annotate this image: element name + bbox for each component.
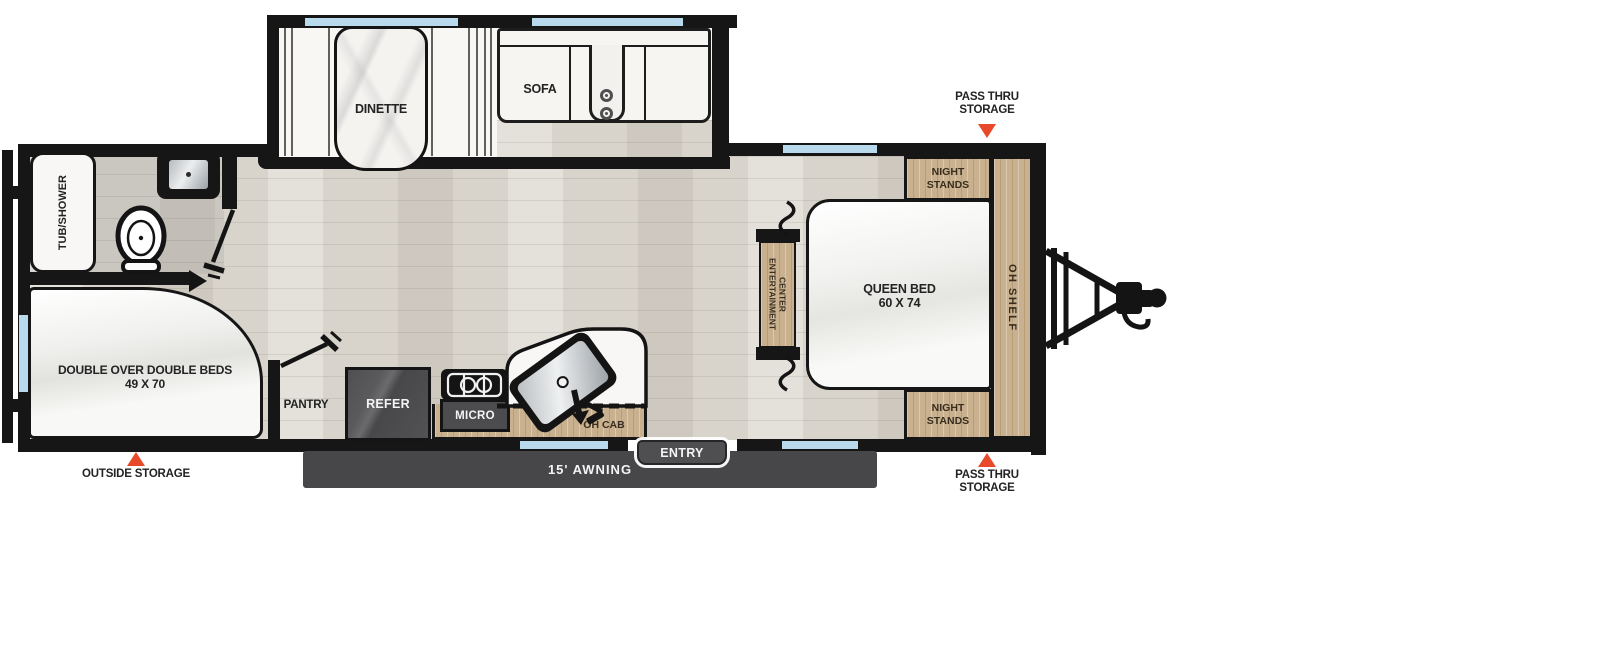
pass-thru-storage-label-top: PASS THRU STORAGE bbox=[925, 91, 1049, 117]
bumper-bracket bbox=[13, 399, 19, 412]
night-stand-top: NIGHT STANDS bbox=[904, 156, 992, 201]
pass-thru-top-line2: STORAGE bbox=[925, 104, 1049, 117]
oh-shelf: OH SHELF bbox=[991, 156, 1033, 439]
bathroom-wall-stub bbox=[222, 148, 237, 209]
dinette-label: DINETTE bbox=[336, 102, 426, 116]
dinette-table bbox=[334, 26, 428, 171]
slideout-divider-line bbox=[484, 28, 486, 156]
bench-panel-line bbox=[328, 28, 330, 156]
tub-shower-label: TUB/SHOWER bbox=[57, 175, 69, 250]
pantry-label: PANTRY bbox=[270, 399, 342, 412]
window bbox=[783, 145, 877, 153]
bench-panel-line bbox=[291, 28, 293, 156]
sofa-seat-divider bbox=[644, 45, 646, 120]
sofa-label: SOFA bbox=[508, 82, 572, 96]
pass-thru-bottom-line2: STORAGE bbox=[925, 482, 1049, 495]
awning-bar: 15' AWNING bbox=[303, 451, 877, 488]
queen-bed-label-line2: 60 X 74 bbox=[812, 296, 987, 310]
pass-thru-storage-marker-icon bbox=[978, 124, 996, 138]
tub-shower: TUB/SHOWER bbox=[30, 152, 96, 273]
slideout-divider-line bbox=[490, 28, 492, 156]
bench-panel-line bbox=[284, 28, 286, 156]
bench-panel-line bbox=[476, 28, 478, 156]
slideout-floor bbox=[497, 120, 713, 160]
bathroom-sink-drain bbox=[186, 172, 191, 177]
slideout-threshold bbox=[258, 157, 730, 169]
cupholder-icon bbox=[600, 107, 613, 120]
night-stand-label: STANDS bbox=[927, 179, 969, 191]
window bbox=[782, 441, 858, 449]
bench-panel-line bbox=[431, 28, 433, 156]
pass-thru-storage-label-bottom: PASS THRU STORAGE bbox=[925, 469, 1049, 495]
window bbox=[19, 315, 28, 392]
oh-shelf-label: OH SHELF bbox=[1006, 264, 1018, 332]
awning-label: 15' AWNING bbox=[548, 462, 632, 477]
queen-bed-label-line1: QUEEN BED bbox=[812, 282, 987, 296]
bathroom-sink bbox=[157, 151, 220, 199]
bumper-bracket bbox=[13, 186, 19, 199]
slideout-right-wall bbox=[712, 15, 729, 162]
rv-floorplan: DINETTE SOFA OH SHELF NIGHT STANDS NIGHT… bbox=[0, 0, 1600, 653]
refrigerator: REFER bbox=[345, 367, 431, 441]
queen-bed-label: QUEEN BED 60 X 74 bbox=[812, 282, 987, 311]
sofa-armrest-console bbox=[589, 45, 625, 122]
outside-storage-label: OUTSIDE STORAGE bbox=[54, 468, 218, 481]
oh-cab-label: OH CAB bbox=[565, 419, 643, 431]
night-stand-label: NIGHT bbox=[932, 402, 965, 414]
refrigerator-label: REFER bbox=[366, 397, 410, 411]
microwave-label: MICRO bbox=[455, 410, 495, 422]
bedroom-top-wall bbox=[712, 143, 1046, 156]
rear-bumper bbox=[2, 150, 13, 443]
cupholder-icon bbox=[600, 89, 613, 102]
sofa bbox=[497, 28, 711, 123]
window bbox=[532, 18, 683, 26]
double-beds-label-line2: 49 X 70 bbox=[55, 378, 235, 392]
front-wall bbox=[1031, 143, 1046, 455]
bench-panel-line bbox=[468, 28, 470, 156]
bathroom-bottom-wall bbox=[28, 272, 189, 285]
night-stand-label: NIGHT bbox=[932, 166, 965, 178]
night-stand-label: STANDS bbox=[927, 415, 969, 427]
entry-door: ENTRY bbox=[637, 440, 727, 465]
night-stand-bottom: NIGHT STANDS bbox=[904, 389, 992, 440]
window bbox=[305, 18, 458, 26]
entertainment-center-cap bbox=[756, 347, 800, 360]
hitch-jack-hook bbox=[1124, 312, 1148, 327]
entry-label: ENTRY bbox=[660, 446, 703, 460]
pass-thru-bottom-line1: PASS THRU bbox=[925, 469, 1049, 482]
entertainment-center-label-line2: CENTER bbox=[778, 277, 788, 312]
pass-thru-storage-marker-icon bbox=[978, 453, 996, 467]
double-beds-label-line1: DOUBLE OVER DOUBLE BEDS bbox=[55, 364, 235, 378]
double-beds-label: DOUBLE OVER DOUBLE BEDS 49 X 70 bbox=[55, 364, 235, 392]
trailer-hitch bbox=[1046, 248, 1167, 349]
outside-storage-marker-icon bbox=[127, 452, 145, 466]
pass-thru-top-line1: PASS THRU bbox=[925, 91, 1049, 104]
entertainment-center-label-line1: ENTERTAINMENT bbox=[767, 258, 777, 330]
entertainment-center: ENTERTAINMENT CENTER bbox=[759, 241, 796, 348]
